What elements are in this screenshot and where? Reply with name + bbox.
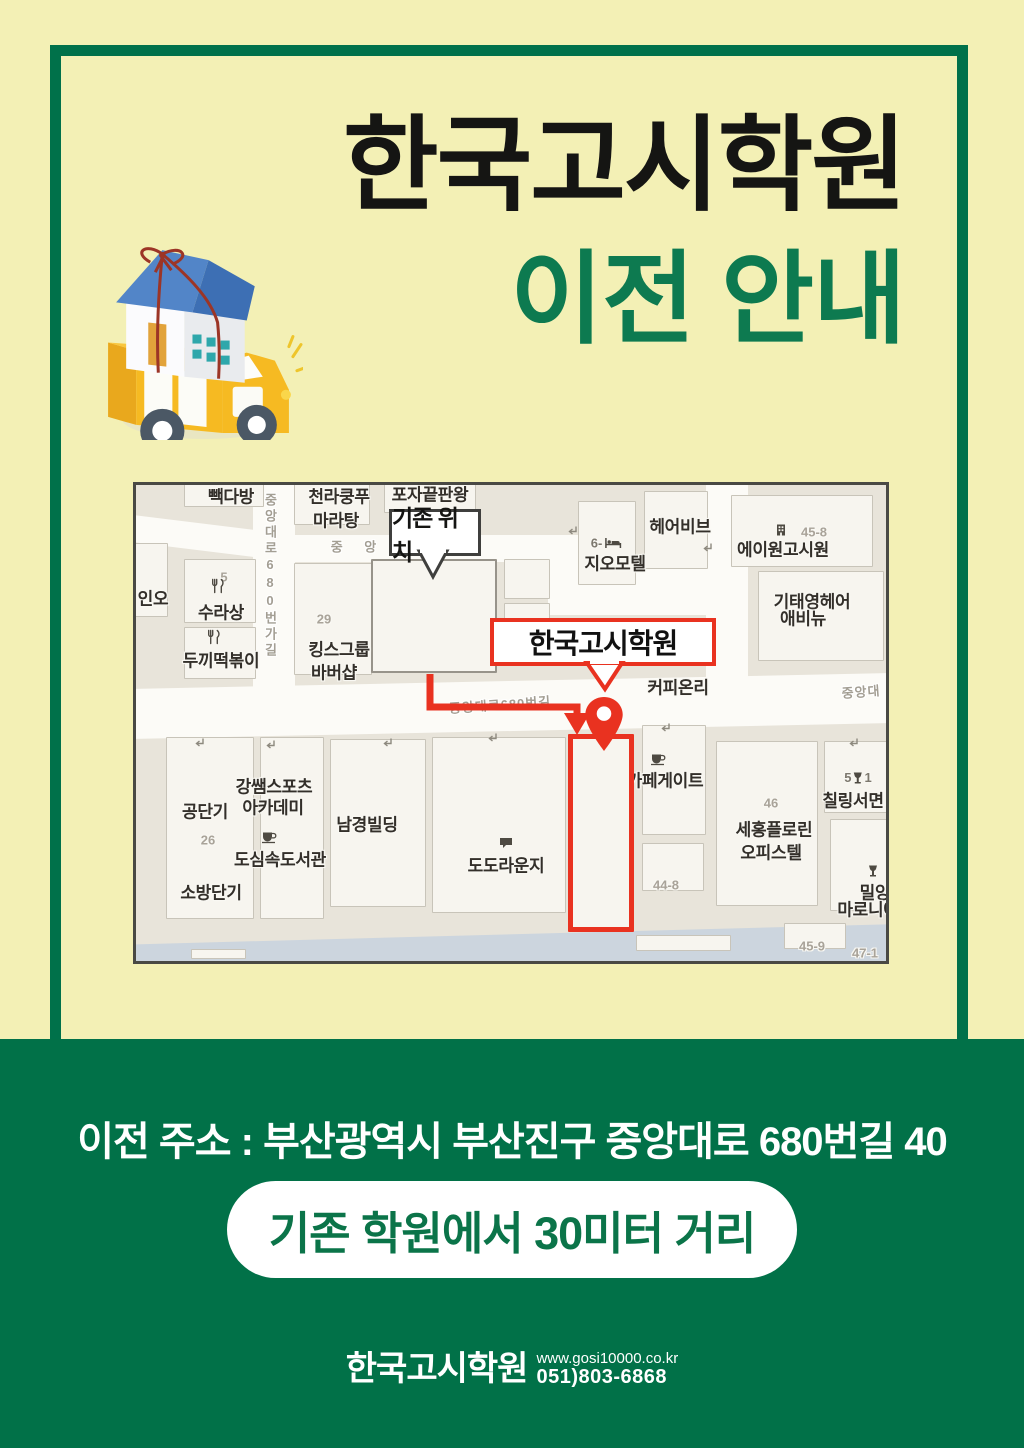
- map-label-sobangdangi: 소방단기: [180, 879, 241, 904]
- building: [191, 949, 246, 959]
- building: [636, 935, 731, 951]
- map-label-chilling: 칠링서면: [822, 787, 883, 812]
- bed-icon: [604, 538, 621, 549]
- restaurant-icon: [211, 579, 226, 594]
- map-label-num44-8: 44-8: [653, 878, 679, 893]
- distance-badge: 기존 학원에서 30미터 거리: [227, 1181, 797, 1278]
- distance-badge-label: 기존 학원에서 30미터 거리: [269, 1197, 756, 1262]
- building: [432, 737, 566, 913]
- map-label-num26: 26: [201, 833, 215, 848]
- map-label-a1gosiwon: 에이원고시원: [737, 536, 829, 561]
- map-label-hairvibe: 헤어비브: [649, 513, 710, 538]
- brand-logo: 한국고시학원: [346, 1351, 528, 1387]
- new-location-building: [568, 734, 634, 932]
- street-label-right: 중앙대: [841, 680, 881, 702]
- map-label-num45-9: 45-9: [799, 939, 825, 954]
- map-label-ddukki: 두끼떡볶이: [183, 647, 260, 672]
- map-label-num46: 46: [764, 796, 778, 811]
- map-label-ino: 인오: [138, 585, 169, 610]
- map-label-coffeeonly: 커피온리: [647, 674, 708, 699]
- moving-truck-illustration: [95, 224, 303, 440]
- old-location-callout: 기존 위치: [389, 509, 481, 556]
- contact-block: www.gosi10000.co.kr 051)803-6868: [536, 1351, 678, 1387]
- map-label-geomotel: 지오모텔: [584, 550, 645, 575]
- restaurant-icon: [207, 630, 222, 645]
- page-subtitle: 이전 안내: [343, 250, 905, 351]
- footer-logo: 한국고시학원 www.gosi10000.co.kr 051)803-6868: [0, 1351, 1024, 1387]
- phone-number: 051)803-6868: [536, 1368, 678, 1387]
- map-label-num29: 29: [317, 612, 331, 627]
- map-label-kings-1: 킹스그룹: [308, 636, 369, 661]
- building-icon: [775, 524, 787, 537]
- map-label-surasang: 수라상: [198, 599, 244, 624]
- map-image: 중앙대로680번가길 중 앙 중앙대로680번길 중앙대 빽다방 천라쿵푸 마라…: [133, 482, 889, 964]
- relocation-address: 이전 주소 : 부산광역시 부산진구 중앙대로 680번길 40: [0, 1109, 1024, 1167]
- street-label-top: 중 앙: [331, 537, 386, 556]
- relocation-poster: 한국고시학원 이전 안내: [0, 0, 1024, 1448]
- entrance-arrow-icon: [265, 739, 277, 751]
- new-location-callout: 한국고시학원: [490, 618, 716, 666]
- map-pin-icon: [585, 697, 623, 751]
- entrance-arrow-icon: [848, 737, 860, 749]
- street-label-vertical: 중앙대로680번가길: [261, 493, 280, 659]
- building: [260, 737, 324, 919]
- map-label-baekdabang: 빽다방: [208, 483, 254, 508]
- entrance-arrow-icon: [660, 722, 672, 734]
- map-label-kings-2: 바버샵: [311, 659, 357, 684]
- building: [504, 559, 550, 599]
- map-label-namkyung: 남경빌딩: [336, 811, 397, 836]
- map-label-gongdangi: 공단기: [182, 798, 228, 823]
- map-label-sehong-1: 세홍플로린: [736, 816, 813, 841]
- entrance-arrow-icon: [382, 737, 394, 749]
- info-section: 이전 주소 : 부산광역시 부산진구 중앙대로 680번길 40 기존 학원에서…: [0, 1039, 1024, 1448]
- map-label-kitae-2: 애비뉴: [780, 605, 826, 630]
- header: 한국고시학원 이전 안내: [343, 112, 905, 351]
- wine-icon: [854, 772, 863, 784]
- coffee-icon: [650, 753, 666, 766]
- wine-icon: [869, 865, 878, 877]
- website-url: www.gosi10000.co.kr: [536, 1351, 678, 1366]
- map-label-sehong-2: 오피스텔: [740, 839, 801, 864]
- entrance-arrow-icon: [194, 737, 206, 749]
- chilling-number-group: 5 1: [844, 772, 871, 784]
- map-label-dodo: 도도라운지: [468, 852, 545, 877]
- map-label-mil-2: 마로니에: [837, 896, 889, 921]
- entrance-arrow-icon: [487, 732, 499, 744]
- map-label-dosim: 도심속도서관: [234, 846, 326, 871]
- map-label-chunra-1: 천라쿵푸: [308, 483, 369, 508]
- page-title: 한국고시학원: [343, 112, 905, 220]
- motel-number-group: 6-: [591, 538, 622, 549]
- map-label-chunra-2: 마라탕: [313, 507, 359, 532]
- map-label-gang-2: 아카데미: [242, 794, 303, 819]
- entrance-arrow-icon: [567, 525, 579, 537]
- map-label-num47-1: 47-1: [852, 946, 878, 961]
- map-label-cafegate: 카페게이트: [627, 767, 704, 792]
- old-location-building: [371, 559, 497, 673]
- coffee-icon: [261, 831, 277, 844]
- chat-icon: [499, 837, 513, 849]
- entrance-arrow-icon: [702, 542, 714, 554]
